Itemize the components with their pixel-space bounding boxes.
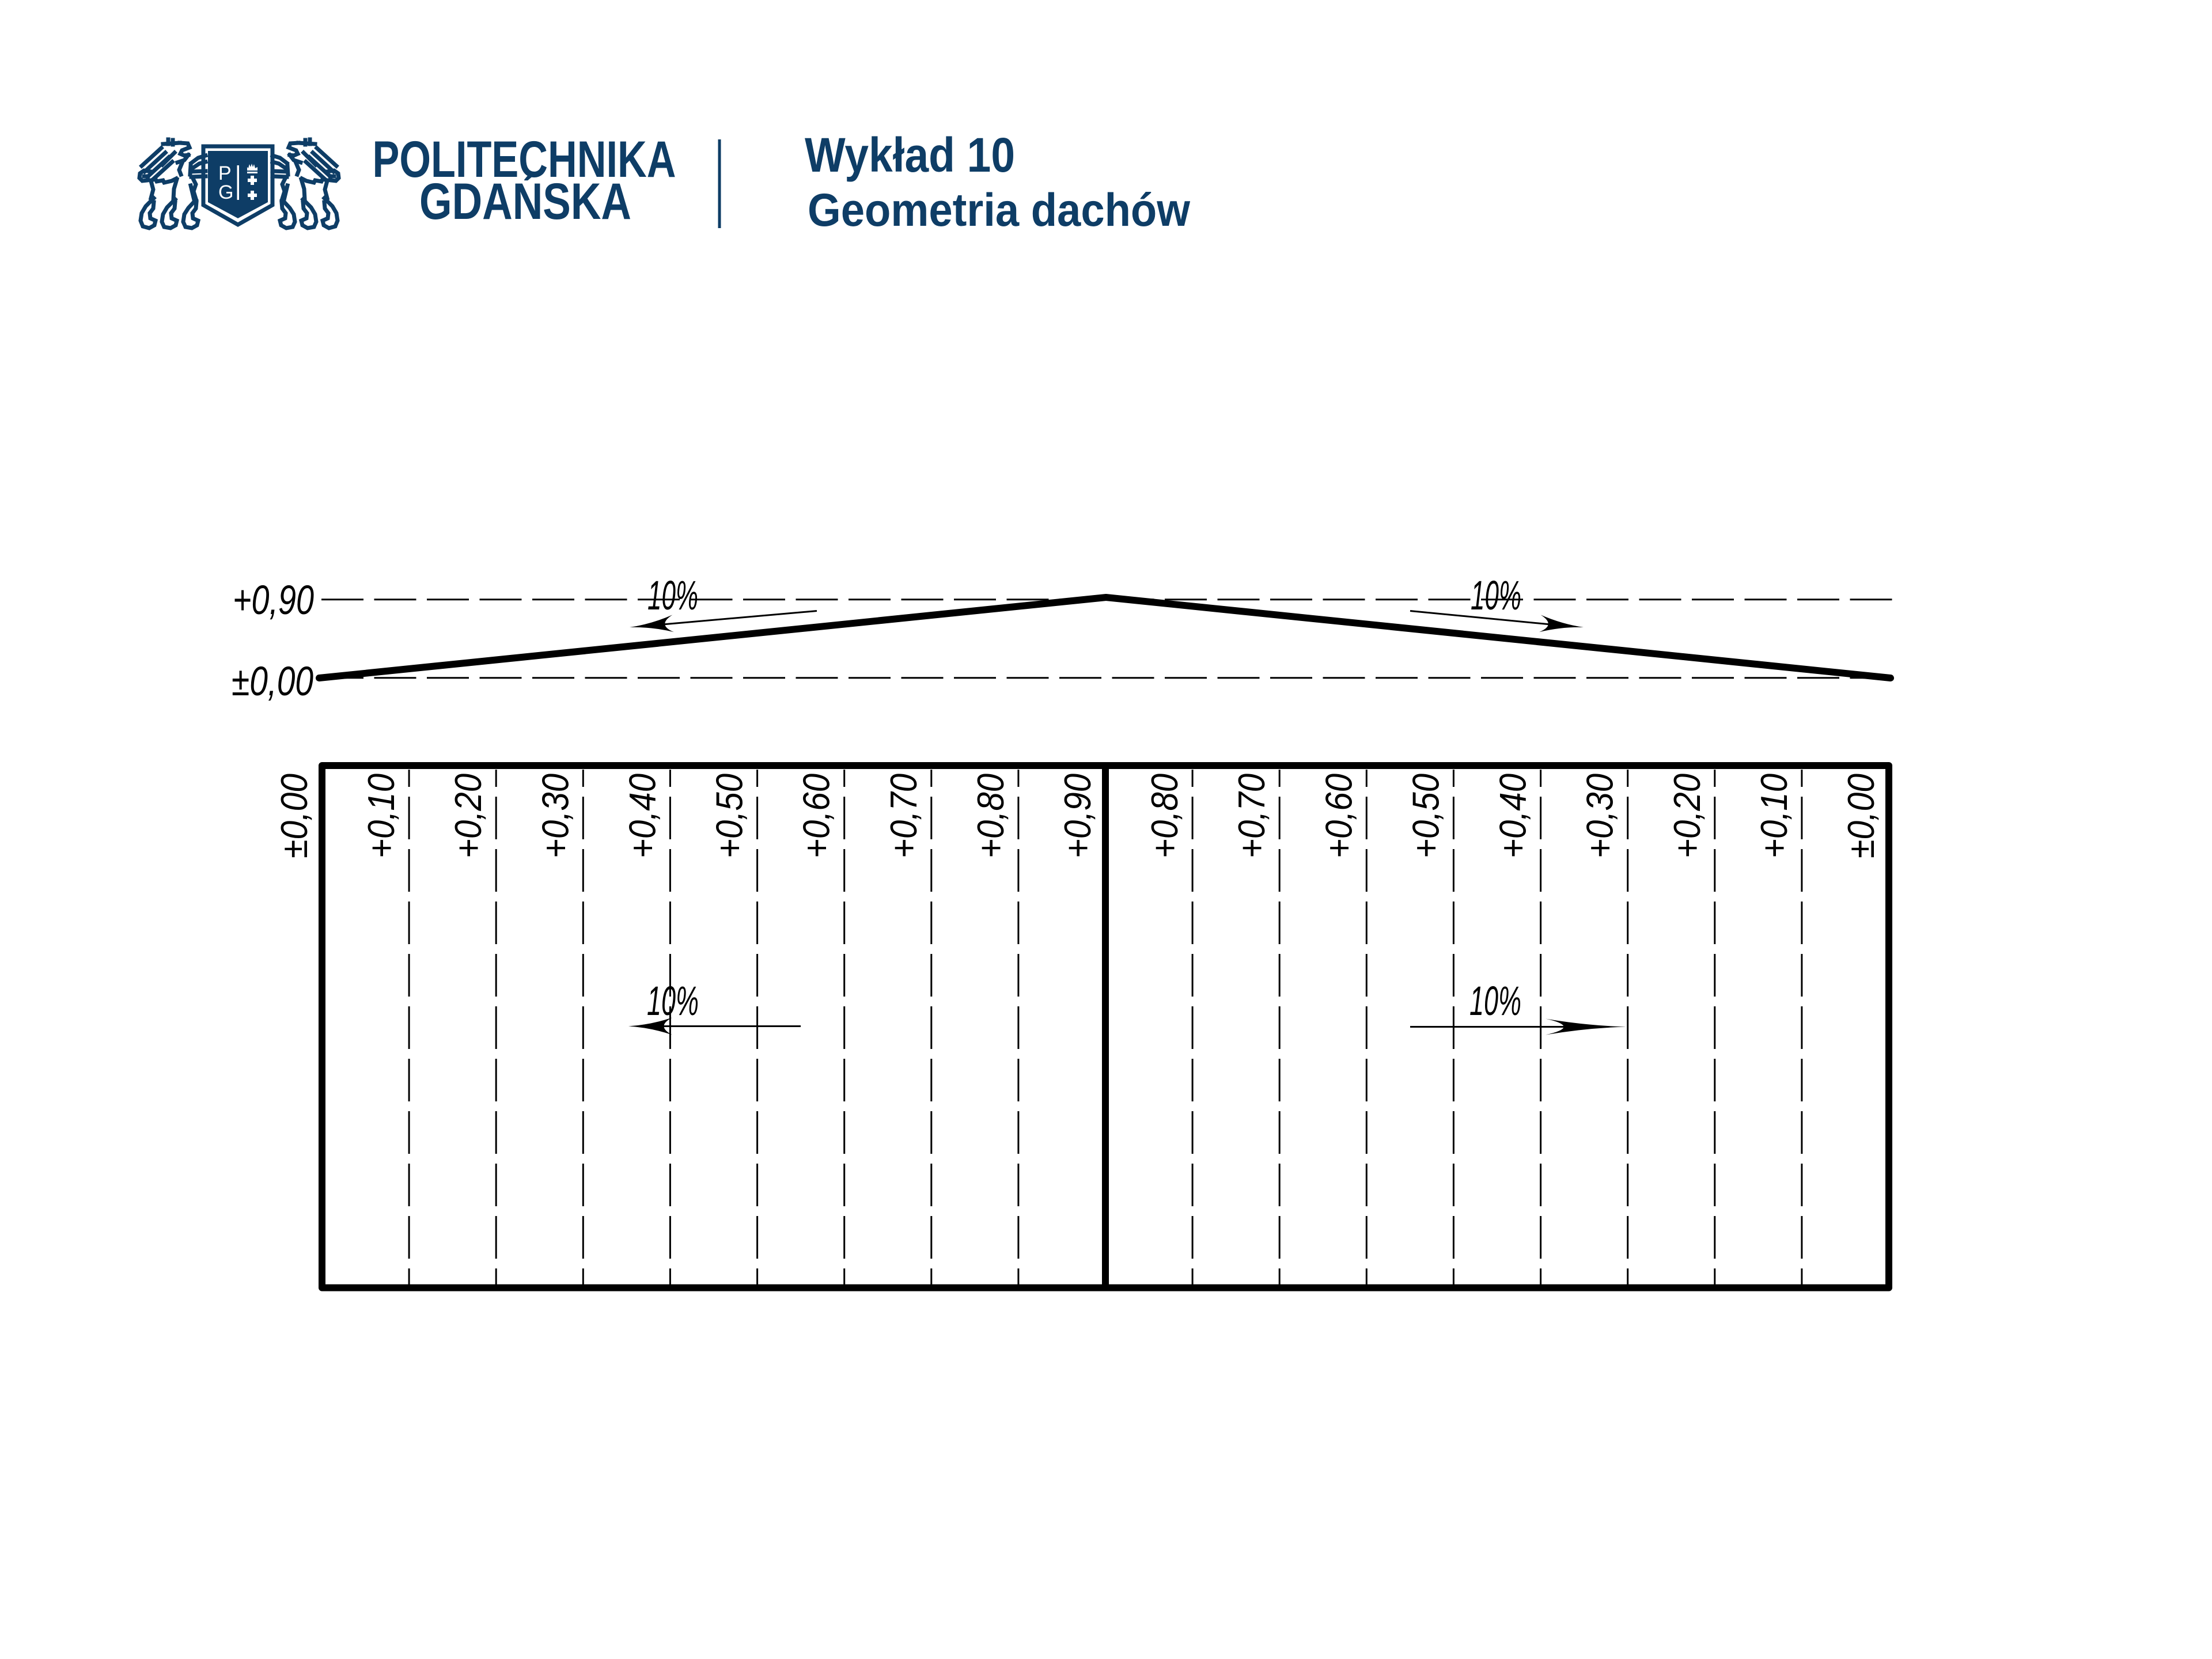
svg-text:+0,50: +0,50 [1404,774,1446,858]
svg-text:+0,60: +0,60 [796,774,838,858]
svg-text:G: G [218,181,233,203]
svg-text:10%: 10% [1469,979,1521,1024]
svg-text:+0,60: +0,60 [1317,774,1359,858]
svg-text:Geometria dachów: Geometria dachów [808,184,1191,236]
svg-text:±0,00: ±0,00 [273,774,315,858]
svg-text:+0,30: +0,30 [1579,774,1621,858]
svg-text:+0,40: +0,40 [621,774,663,858]
svg-text:+0,80: +0,80 [969,774,1012,858]
svg-text:+0,50: +0,50 [709,774,751,858]
svg-text:+0,10: +0,10 [1753,774,1795,858]
svg-text:+0,30: +0,30 [534,774,576,858]
svg-text:+0,70: +0,70 [1230,774,1272,858]
svg-text:+0,70: +0,70 [882,774,925,858]
svg-text:10%: 10% [647,573,698,619]
svg-text:+0,90: +0,90 [233,578,314,623]
svg-text:10%: 10% [647,979,699,1024]
svg-text:±0,00: ±0,00 [232,659,313,704]
svg-text:Wykład 10: Wykład 10 [805,128,1015,182]
svg-text:10%: 10% [1471,573,1521,619]
svg-text:+0,20: +0,20 [1666,774,1708,858]
svg-text:+0,80: +0,80 [1143,774,1185,858]
svg-text:+0,90: +0,90 [1056,774,1099,858]
svg-text:+0,10: +0,10 [360,774,402,858]
svg-text:±0,00: ±0,00 [1840,774,1882,858]
svg-text:+0,20: +0,20 [447,774,489,858]
svg-text:GDAŃSKA: GDAŃSKA [419,172,631,230]
svg-text:+0,40: +0,40 [1492,774,1534,858]
